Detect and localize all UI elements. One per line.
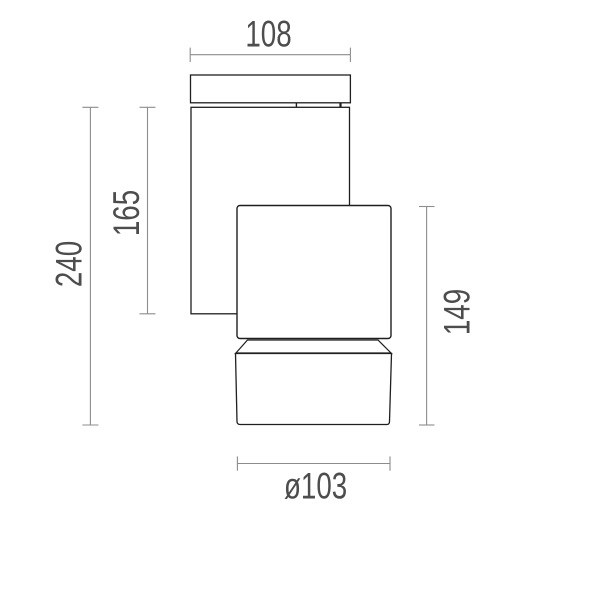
svg-text:149: 149 <box>436 289 478 335</box>
svg-text:165: 165 <box>105 190 147 236</box>
svg-text:ø103: ø103 <box>284 465 347 507</box>
svg-text:240: 240 <box>48 241 90 287</box>
svg-text:108: 108 <box>245 12 291 54</box>
